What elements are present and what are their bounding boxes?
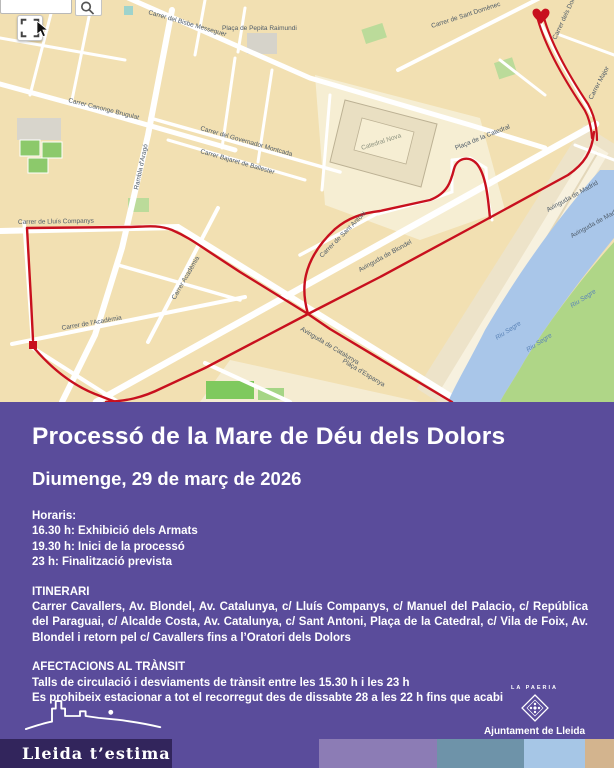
mouse-cursor bbox=[36, 21, 50, 38]
page-title: Processó de la Mare de Déu dels Dolors bbox=[32, 423, 588, 451]
route-end-marker bbox=[29, 341, 37, 349]
palette-block bbox=[437, 739, 524, 768]
map[interactable]: Carrer del Bisbe MesseguerPlaça de Pepit… bbox=[0, 0, 614, 402]
itinerary-block: ITINERARI Carrer Cavallers, Av. Blondel,… bbox=[32, 585, 588, 647]
paeria-label: LA PAERIA bbox=[482, 685, 587, 691]
itinerary-text: Carrer Cavallers, Av. Blondel, Av. Catal… bbox=[32, 600, 588, 646]
ajuntament-logo: LA PAERIA Ajuntament de Lleida bbox=[482, 685, 587, 737]
schedule-block: Horaris: 16.30 h: Exhibició dels Armats … bbox=[32, 509, 588, 571]
lleida-testima-logo: Lleida t’estima bbox=[0, 739, 172, 768]
itinerary-heading: ITINERARI bbox=[32, 585, 588, 600]
teal-patch bbox=[124, 6, 133, 15]
palette-strip bbox=[319, 739, 614, 768]
poster: Carrer del Bisbe MesseguerPlaça de Pepit… bbox=[0, 0, 614, 768]
lleida-testima-text: Lleida t’estima bbox=[0, 744, 171, 763]
palette-block bbox=[524, 739, 585, 768]
map-street-label: Carrer de Lluís Companys bbox=[18, 218, 95, 226]
info-panel: Processó de la Mare de Déu dels Dolors D… bbox=[0, 402, 614, 768]
map-search-input[interactable] bbox=[0, 0, 72, 14]
schedule-heading: Horaris: bbox=[32, 509, 588, 524]
schedule-item: 16.30 h: Exhibició dels Armats bbox=[32, 524, 588, 539]
palette-block bbox=[585, 739, 614, 768]
search-icon bbox=[76, 0, 98, 15]
schedule-item: 19.30 h: Inici de la processó bbox=[32, 540, 588, 555]
traffic-heading: AFECTACIONS AL TRÀNSIT bbox=[32, 660, 588, 675]
schedule-item: 23 h: Finalització prevista bbox=[32, 555, 588, 570]
event-date: Diumenge, 29 de març de 2026 bbox=[32, 468, 588, 490]
paeria-emblem-icon bbox=[520, 693, 550, 723]
lleida-skyline-logo bbox=[24, 696, 164, 736]
map-street-label: Plaça de Pepita Raimundi bbox=[222, 25, 297, 32]
ajuntament-label: Ajuntament de Lleida bbox=[482, 726, 587, 737]
palette-block bbox=[319, 739, 437, 768]
map-search-button[interactable] bbox=[75, 0, 102, 16]
gray-plaza bbox=[17, 118, 61, 140]
map-canvas: Carrer del Bisbe MesseguerPlaça de Pepit… bbox=[0, 0, 614, 402]
